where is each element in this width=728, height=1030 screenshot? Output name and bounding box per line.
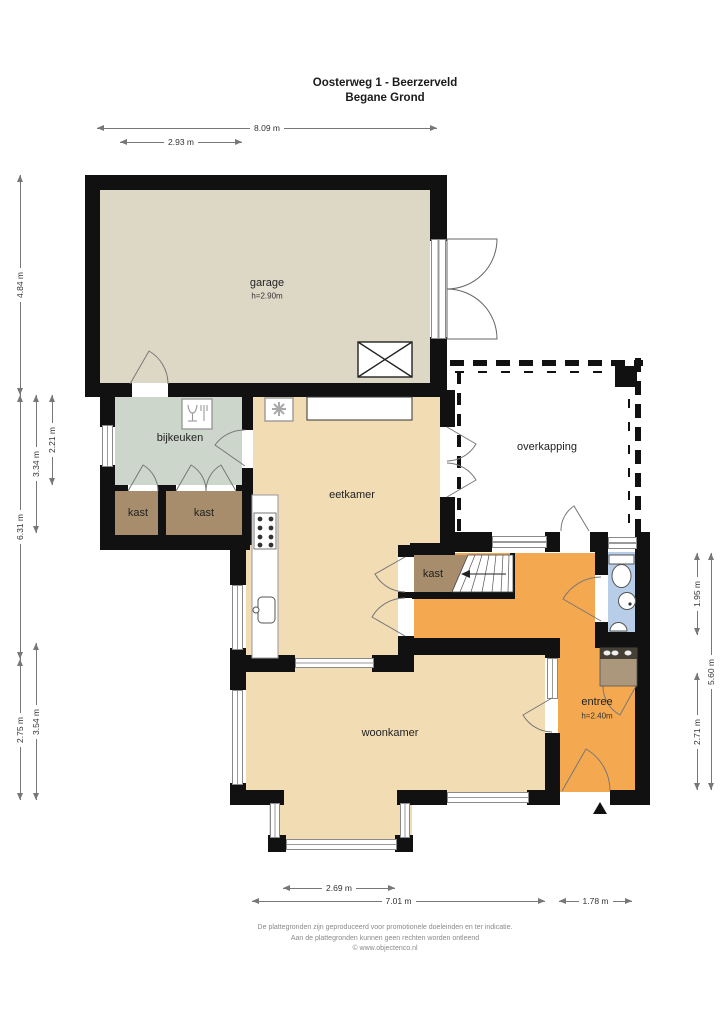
dimension-bottom-entree: 1.78 m xyxy=(559,901,632,902)
dimension-right-entree: 2.71 m xyxy=(697,673,698,790)
dimension-right-total: 5.60 m xyxy=(711,553,712,790)
wall-segment xyxy=(405,638,560,655)
wall-segment xyxy=(85,383,132,397)
window xyxy=(102,425,113,467)
wall-segment xyxy=(242,397,253,432)
room-bay-window xyxy=(269,792,412,839)
wall-segment xyxy=(100,535,250,550)
disclaimer-line3: © www.objectenco.nl xyxy=(258,944,513,955)
disclaimer-line1: De plattegronden zijn geproduceerd voor … xyxy=(258,923,513,934)
disclaimer-line2: Aan de plattegronden kunnen geen rechten… xyxy=(258,934,513,945)
wall-segment xyxy=(115,485,128,491)
page-title: Oosterweg 1 - Beerzerveld Begane Grond xyxy=(313,76,457,106)
room-label-overkapping: overkapping xyxy=(517,441,577,453)
dimension-right-toilet: 1.95 m xyxy=(697,553,698,635)
wall-segment xyxy=(440,390,455,427)
garage-door-opening xyxy=(431,239,446,339)
window xyxy=(608,537,637,549)
doorway xyxy=(400,598,412,636)
bay-window-side xyxy=(270,803,280,838)
wall-segment xyxy=(242,468,253,545)
wall-segment xyxy=(510,553,515,595)
wall-segment xyxy=(635,532,650,805)
room-label-woonkamer: woonkamer xyxy=(362,727,419,739)
room-toilet xyxy=(608,552,635,633)
title-address: Oosterweg 1 - Beerzerveld xyxy=(313,76,457,91)
wall-segment xyxy=(430,175,447,241)
room-height-entree: h=2.40m xyxy=(581,712,612,721)
room-label-eetkamer: eetkamer xyxy=(329,489,375,501)
doorway xyxy=(242,430,253,468)
room-label-kast-hal: kast xyxy=(423,568,443,580)
disclaimer: De plattegronden zijn geproduceerd voor … xyxy=(258,923,513,955)
room-label-entree: entree xyxy=(581,696,612,708)
dimension-bottom-bay: 2.69 m xyxy=(283,888,395,889)
wall-segment xyxy=(158,491,166,537)
wall-segment xyxy=(595,552,608,575)
window xyxy=(492,536,547,548)
wall-segment xyxy=(610,790,650,805)
dimension-left-garage: 4.84 m xyxy=(20,175,21,395)
wall-segment xyxy=(527,790,560,805)
wall-segment xyxy=(545,638,560,658)
wall-segment xyxy=(230,545,246,585)
window xyxy=(447,792,529,803)
wall-segment xyxy=(595,632,650,648)
doorway xyxy=(132,385,168,395)
dimension-top-left: 2.93 m xyxy=(120,142,242,143)
title-floor: Begane Grond xyxy=(313,91,457,106)
wall-segment xyxy=(440,532,492,552)
dimension-top-total: 8.09 m xyxy=(97,128,437,129)
bay-window-side xyxy=(400,803,410,838)
dimension-bottom-total: 7.01 m xyxy=(252,901,545,902)
room-height-garage: h=2.90m xyxy=(251,292,282,301)
wall-segment xyxy=(230,648,246,690)
dimension-left-bottom: 2.75 m xyxy=(20,659,21,800)
interior-opening xyxy=(295,658,374,668)
wall-segment xyxy=(168,383,447,397)
wall-segment xyxy=(545,532,560,552)
doorway xyxy=(547,697,558,733)
doorway xyxy=(442,427,453,497)
wall-segment xyxy=(590,532,608,552)
room-label-kast-left: kast xyxy=(128,507,148,519)
room-label-garage: garage xyxy=(250,277,284,289)
wall-segment xyxy=(85,175,447,190)
room-eetkamer xyxy=(250,397,440,545)
wall-segment xyxy=(246,655,295,672)
window xyxy=(547,658,558,699)
wall-segment xyxy=(85,175,100,397)
wall-segment xyxy=(398,545,414,557)
dimension-left-middle: 6.31 m xyxy=(20,395,21,659)
window xyxy=(232,690,243,785)
wall-segment xyxy=(410,592,515,599)
front-doorway xyxy=(560,792,610,805)
garage-door-leaves xyxy=(447,239,497,339)
bay-window-front xyxy=(286,839,397,850)
dimension-left-inner-top: 3.34 m xyxy=(36,395,37,533)
room-label-kast-middle: kast xyxy=(194,507,214,519)
dimension-left-innermost: 2.21 m xyxy=(52,395,53,485)
wall-segment xyxy=(372,655,414,672)
floorplan: Oosterweg 1 - Beerzerveld Begane Grond xyxy=(0,0,728,1030)
window xyxy=(232,585,243,650)
wall-segment xyxy=(545,733,560,790)
doorway xyxy=(597,575,606,622)
wall-segment xyxy=(236,485,243,491)
room-label-bijkeuken: bijkeuken xyxy=(157,432,203,444)
doorway xyxy=(560,534,590,550)
doorway xyxy=(400,557,412,592)
wall-segment xyxy=(100,397,115,427)
dimension-left-inner-bottom: 3.54 m xyxy=(36,643,37,800)
